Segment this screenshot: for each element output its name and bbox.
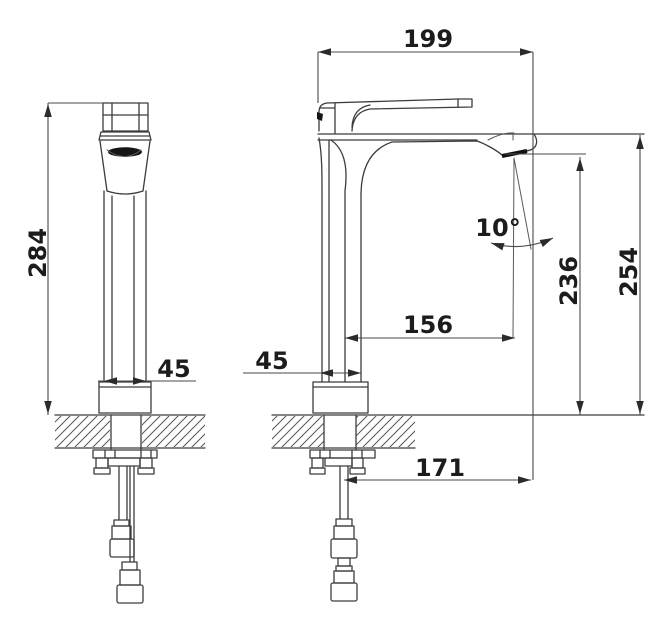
faucet-technical-drawing: 284 45 45 199 10° 156 171 236 254 bbox=[0, 0, 668, 626]
side-view-handle bbox=[319, 99, 472, 133]
front-view-column bbox=[99, 191, 151, 413]
side-view-handle-notch bbox=[317, 112, 323, 121]
front-view bbox=[55, 103, 205, 603]
dimension-label-front-total-height: 284 bbox=[24, 228, 52, 278]
countertop-hatch bbox=[55, 416, 110, 447]
water-stream-lines bbox=[513, 158, 531, 338]
countertop-hatch bbox=[356, 416, 415, 447]
dimension-label-stream-angle: 10° bbox=[475, 214, 520, 242]
side-view-mounting-hardware bbox=[310, 450, 375, 474]
side-view-hose bbox=[331, 466, 357, 601]
countertop-hatch bbox=[142, 416, 205, 447]
dimension-label-spout-reach: 156 bbox=[403, 311, 453, 339]
dimension-label-front-base-width: 45 bbox=[157, 355, 190, 383]
dimension-label-hose-offset: 171 bbox=[415, 454, 465, 482]
side-view-body bbox=[313, 133, 644, 413]
countertop-hatch bbox=[272, 416, 324, 447]
front-view-hoses bbox=[110, 466, 143, 603]
dimension-label-outlet-height: 236 bbox=[555, 256, 583, 306]
dimension-label-spout-length: 199 bbox=[403, 25, 453, 53]
side-view-countertop bbox=[272, 415, 644, 450]
side-view bbox=[272, 99, 644, 601]
drawing-canvas: 284 45 45 199 10° 156 171 236 254 bbox=[0, 0, 668, 626]
dimension-lines bbox=[48, 52, 640, 480]
front-view-lever-tip bbox=[108, 147, 142, 157]
front-view-countertop bbox=[55, 415, 205, 450]
front-view-mounting-hardware bbox=[93, 450, 157, 474]
dimension-label-overall-height: 254 bbox=[615, 247, 643, 297]
dimension-label-side-base-width: 45 bbox=[255, 347, 288, 375]
